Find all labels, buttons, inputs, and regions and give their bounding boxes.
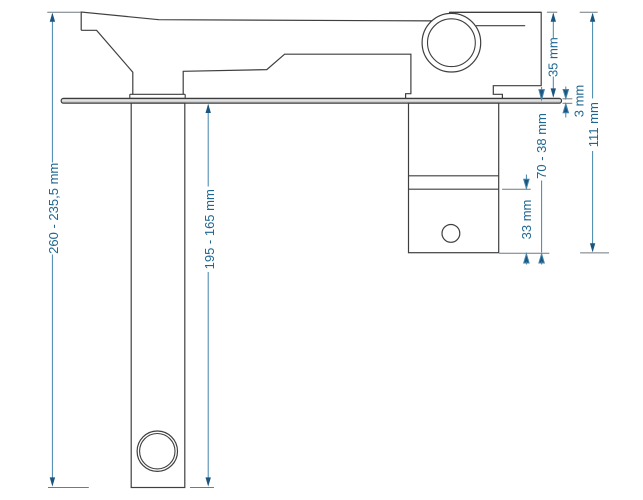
svg-text:260 - 235,5 mm: 260 - 235,5 mm [46,163,61,254]
svg-text:33 mm: 33 mm [519,200,534,240]
svg-text:70 - 38 mm: 70 - 38 mm [534,113,549,179]
svg-text:35 mm: 35 mm [545,37,560,77]
svg-text:111 mm: 111 mm [586,102,601,147]
svg-text:3 mm: 3 mm [571,85,586,118]
svg-text:195 - 165 mm: 195 - 165 mm [202,189,217,269]
